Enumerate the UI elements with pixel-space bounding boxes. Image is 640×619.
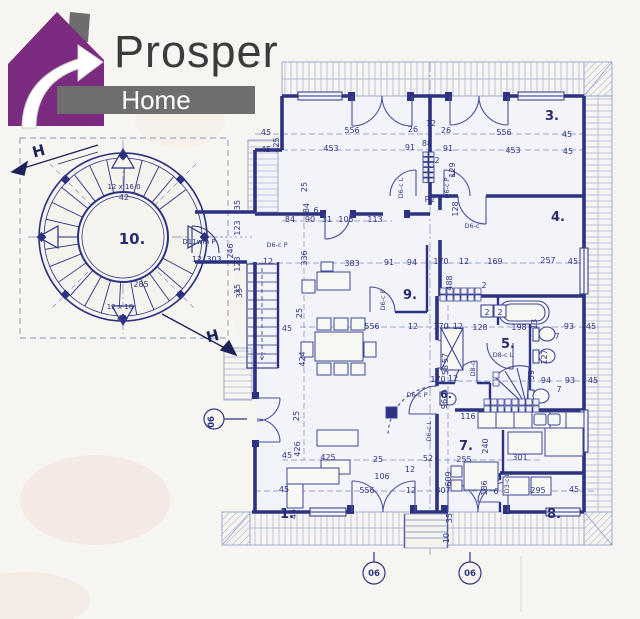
dimension-label: 453 bbox=[323, 144, 338, 153]
dimension-label: 2 bbox=[497, 308, 502, 317]
stove bbox=[386, 407, 397, 418]
door-label: D8-c bbox=[469, 361, 477, 376]
dimension-label: 42 bbox=[117, 314, 127, 323]
dimension-label: 91 bbox=[443, 144, 453, 153]
dimension-label: 93 bbox=[565, 376, 575, 385]
dimension-label: 45 bbox=[588, 376, 598, 385]
dimension-label: 35 bbox=[233, 200, 242, 210]
door-label: D11wm P bbox=[182, 238, 215, 246]
dimension-label: 303 bbox=[206, 255, 221, 264]
desk bbox=[317, 272, 350, 290]
kitchen-counter bbox=[478, 412, 584, 428]
reference-bubble-label: 06 bbox=[368, 569, 380, 579]
dimension-label: 35 bbox=[445, 513, 454, 523]
door-label: D8-c L bbox=[493, 351, 514, 359]
dimension-label: 609 bbox=[444, 471, 453, 486]
dimension-label: 2 bbox=[450, 170, 455, 179]
entrance-porch bbox=[405, 514, 447, 548]
dimension-label: 12 bbox=[405, 465, 415, 474]
dimension-label: 198 bbox=[511, 323, 526, 332]
logo-brand: Prosper bbox=[114, 26, 279, 78]
dimension-label: 301 bbox=[512, 453, 527, 462]
section-marker-label: H bbox=[204, 326, 221, 347]
dimension-label: 12 x 16.0 bbox=[107, 183, 140, 191]
dimension-label: 170 bbox=[430, 375, 445, 384]
dimension-label: 113 bbox=[367, 215, 382, 224]
dimension-label: 6 bbox=[313, 206, 318, 215]
dimension-label: 12 bbox=[263, 257, 273, 266]
dimension-label: 170 bbox=[433, 322, 448, 331]
sofa bbox=[317, 430, 358, 446]
dimension-label: 45 bbox=[261, 145, 271, 154]
dimension-label: 488 bbox=[445, 275, 454, 290]
door-label: D6-c L bbox=[397, 177, 405, 198]
dimension-label: 25 bbox=[295, 308, 304, 318]
door-label: R2 bbox=[425, 195, 436, 204]
room-number: 6. bbox=[440, 388, 452, 401]
dimension-label: 246 bbox=[226, 243, 235, 258]
dimension-label: 556 bbox=[496, 128, 511, 137]
dimension-label: 26 bbox=[441, 126, 451, 135]
room-number: 8. bbox=[547, 507, 561, 522]
scanned-floor-plan-page: 4555626122655645454254539188914534525848… bbox=[0, 0, 640, 619]
sink bbox=[534, 414, 546, 425]
dimension-label: 295 bbox=[530, 486, 545, 495]
dimension-label: 128 bbox=[451, 201, 460, 216]
door-label: D6-c P bbox=[443, 177, 451, 198]
dimension-label: 45 bbox=[282, 324, 292, 333]
dimension-label: 556 bbox=[344, 126, 359, 135]
dimension-label: 2 bbox=[484, 308, 489, 317]
dimension-label: 26 bbox=[408, 125, 418, 134]
logo-subtitle: Home bbox=[121, 85, 190, 115]
dimension-label: 255 bbox=[456, 455, 471, 464]
dimension-label: 94 bbox=[407, 258, 417, 267]
dimension-label: 426 bbox=[293, 441, 302, 456]
dimension-label: 45 bbox=[563, 147, 573, 156]
dimension-label: 128 bbox=[472, 323, 487, 332]
room-number: 1. bbox=[280, 507, 294, 522]
reference-bubble-label: 06 bbox=[207, 416, 217, 428]
room-number: 10. bbox=[119, 230, 146, 248]
dimension-label: 35 bbox=[235, 288, 244, 298]
dimension-label: 90 bbox=[305, 215, 315, 224]
dimension-label: 105 bbox=[338, 215, 353, 224]
dimension-label: 12 x 18 bbox=[107, 303, 133, 311]
dimension-label: 12 bbox=[406, 486, 416, 495]
room-number: 9. bbox=[403, 288, 417, 303]
dimension-label: 556 bbox=[359, 486, 374, 495]
dimension-label: 59 bbox=[527, 370, 536, 380]
dimension-label: 170 bbox=[433, 257, 448, 266]
dimension-label: 12 bbox=[459, 257, 469, 266]
dimension-label: 123 bbox=[233, 256, 242, 271]
dimension-label: 285 bbox=[133, 280, 148, 289]
dimension-label: 45 bbox=[568, 257, 578, 266]
dimension-label: 12 bbox=[448, 374, 458, 383]
door-label: D6-c P bbox=[266, 241, 287, 249]
dimension-label: 25 bbox=[300, 182, 309, 192]
dimension-label: 2 bbox=[434, 156, 439, 165]
dimension-label: 556 bbox=[364, 322, 379, 331]
dimension-label: 336 bbox=[300, 250, 309, 265]
prosper-home-logo: Home Prosper bbox=[0, 0, 305, 132]
dimension-label: 84 bbox=[285, 215, 295, 224]
dimension-label: 25 bbox=[373, 455, 383, 464]
dining-table bbox=[315, 332, 363, 361]
dimension-label: 425 bbox=[320, 453, 335, 462]
dimension-label: 88 bbox=[422, 139, 432, 148]
dimension-label: 425 bbox=[272, 137, 281, 152]
section-marker-label: H bbox=[30, 141, 47, 162]
door-label: D6-c bbox=[464, 222, 479, 230]
dimension-label: 45 bbox=[562, 130, 572, 139]
dimension-label: 424 bbox=[298, 351, 307, 366]
dimension-label: 186 bbox=[480, 480, 489, 495]
dimension-label: 25 bbox=[292, 411, 301, 421]
logo-bar: Home bbox=[57, 86, 255, 114]
dimension-label: 12 bbox=[408, 322, 418, 331]
dimension-label: 2 bbox=[481, 281, 486, 290]
dimension-label: 45 bbox=[282, 451, 292, 460]
door-label: D6-c L bbox=[425, 420, 433, 441]
room-number: 7. bbox=[459, 439, 473, 454]
door-label: D3-c L bbox=[503, 472, 511, 493]
dimension-label: 91 bbox=[405, 143, 415, 152]
dimension-label: 383 bbox=[344, 259, 359, 268]
room-number: 3. bbox=[545, 109, 559, 124]
dimension-label: 45 bbox=[279, 485, 289, 494]
dimension-label: 57 bbox=[441, 353, 450, 363]
dimension-label: 13 bbox=[530, 319, 539, 329]
door-label: D6-c P bbox=[379, 289, 387, 310]
dimension-label: 240 bbox=[481, 438, 490, 453]
dimension-label: 12 bbox=[453, 322, 463, 331]
dimension-label: 106 bbox=[374, 472, 389, 481]
reference-bubble-label: 06 bbox=[464, 569, 476, 579]
dimension-label: 12 bbox=[192, 255, 202, 264]
dimension-label: 7 bbox=[556, 385, 561, 394]
dimension-label: 93 bbox=[564, 322, 574, 331]
dimension-label: 94 bbox=[541, 376, 551, 385]
dimension-label: 127 bbox=[540, 349, 549, 364]
dimension-label: 169 bbox=[487, 257, 502, 266]
room-number: 4. bbox=[551, 210, 565, 225]
dimension-label: 257 bbox=[540, 256, 555, 265]
dimension-label: 52 bbox=[423, 454, 433, 463]
dimension-label: 453 bbox=[505, 146, 520, 155]
dimension-label: 84 bbox=[302, 203, 311, 213]
dimension-label: 12 bbox=[426, 119, 436, 128]
dimension-label: 45 bbox=[569, 485, 579, 494]
dimension-label: 42 bbox=[119, 193, 129, 202]
room-number: 5. bbox=[501, 337, 515, 352]
dimension-label: 10 bbox=[442, 533, 451, 543]
dimension-label: 91 bbox=[384, 258, 394, 267]
dimension-label: 31 bbox=[322, 215, 332, 224]
door-label: D6-c P bbox=[406, 391, 427, 399]
dimension-label: 123 bbox=[233, 220, 242, 235]
dimension-label: 116 bbox=[460, 412, 475, 421]
dimension-label: 45 bbox=[586, 322, 596, 331]
dimension-label: 7 bbox=[554, 332, 559, 341]
dimension-label: 6 bbox=[493, 487, 498, 496]
